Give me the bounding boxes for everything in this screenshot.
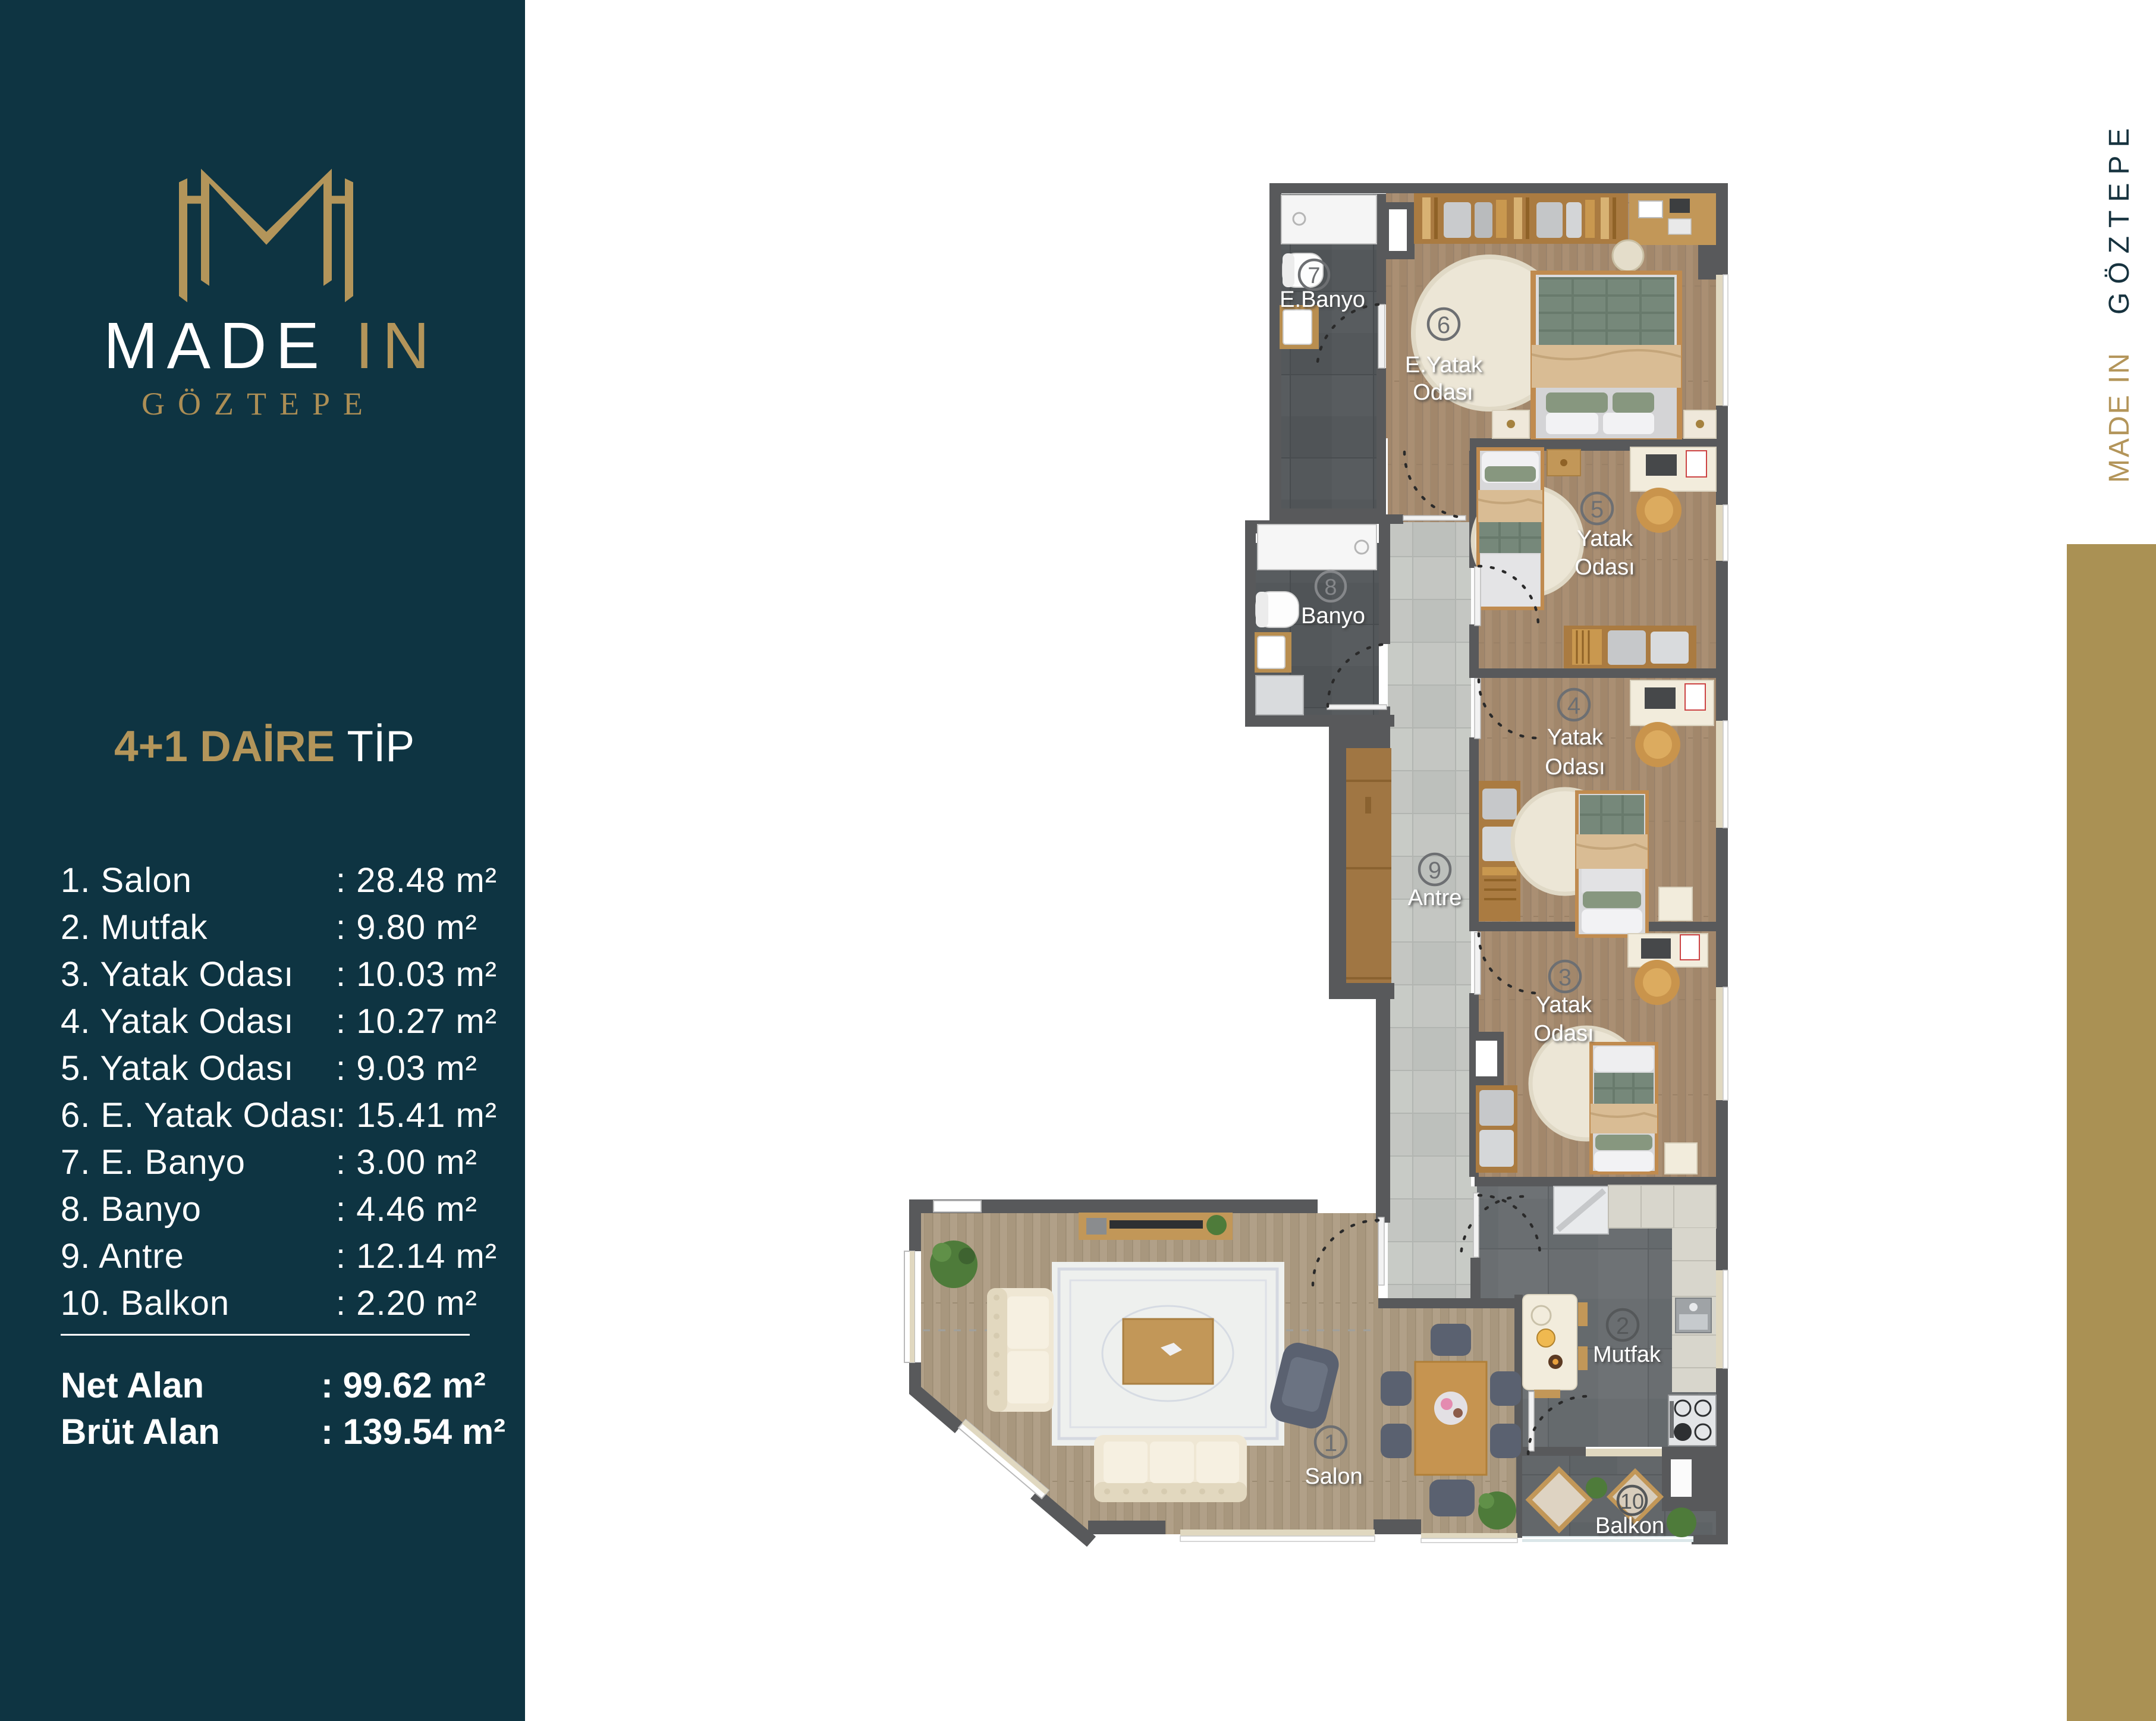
svg-text:Antre: Antre xyxy=(1408,885,1462,910)
svg-text:Odası: Odası xyxy=(1574,555,1635,580)
svg-text:1: 1 xyxy=(1324,1430,1337,1456)
svg-text:10: 10 xyxy=(1620,1489,1644,1513)
svg-text:Mutfak: Mutfak xyxy=(1593,1342,1661,1367)
svg-text:9: 9 xyxy=(1428,858,1441,884)
svg-text:Odası: Odası xyxy=(1533,1021,1594,1046)
svg-text:6: 6 xyxy=(1437,312,1450,338)
svg-text:Odası: Odası xyxy=(1545,755,1605,780)
svg-text:Yatak: Yatak xyxy=(1547,725,1604,750)
svg-text:8: 8 xyxy=(1324,575,1337,600)
svg-text:Balkon: Balkon xyxy=(1595,1513,1664,1538)
svg-text:3: 3 xyxy=(1558,965,1572,991)
svg-text:4: 4 xyxy=(1567,693,1580,719)
svg-text:2: 2 xyxy=(1616,1313,1629,1339)
svg-text:Yatak: Yatak xyxy=(1536,993,1592,1017)
svg-text:E.Yatak: E.Yatak xyxy=(1405,353,1483,378)
svg-text:Salon: Salon xyxy=(1305,1464,1362,1489)
svg-text:7: 7 xyxy=(1308,263,1320,288)
svg-text:Banyo: Banyo xyxy=(1301,604,1365,629)
svg-text:Yatak: Yatak xyxy=(1577,526,1633,551)
svg-text:5: 5 xyxy=(1591,497,1604,523)
svg-text:E.Banyo: E.Banyo xyxy=(1280,287,1365,312)
svg-text:Odası: Odası xyxy=(1413,380,1473,405)
